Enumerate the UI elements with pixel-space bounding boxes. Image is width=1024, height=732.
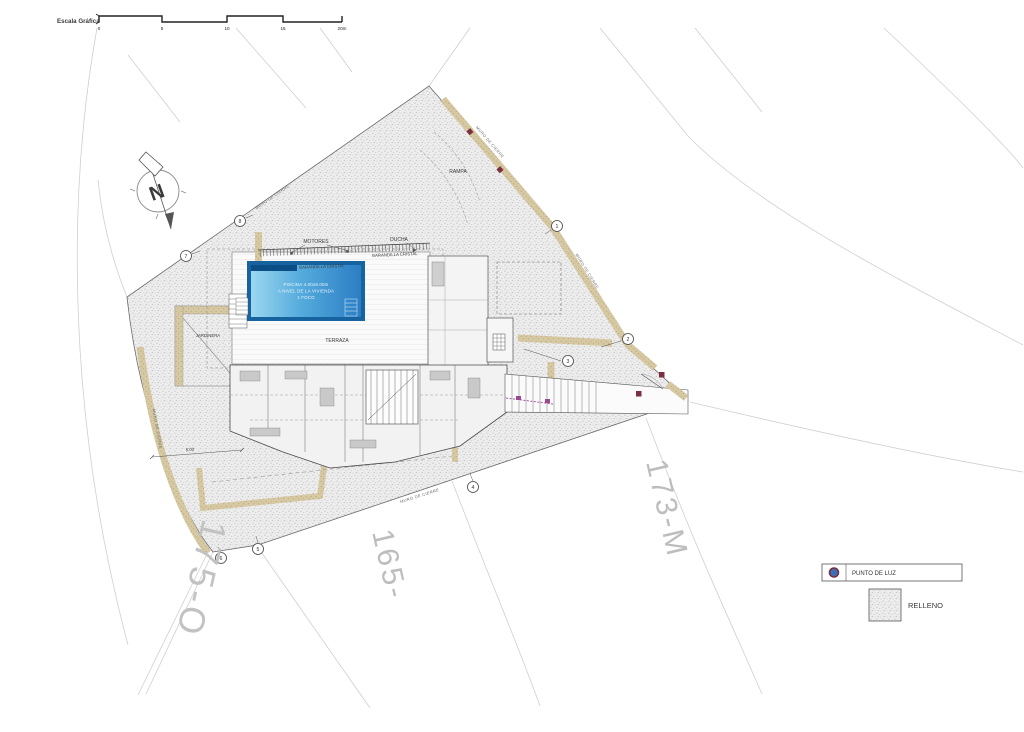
scale-tick-10: 10 — [224, 26, 230, 31]
svg-text:3: 3 — [567, 359, 570, 365]
legend-relleno-label: RELLENO — [908, 601, 943, 610]
scale-bar-title: Escala Gráfica — [57, 18, 100, 25]
scale-tick-5: 5 — [161, 26, 164, 31]
motores-label: MOTORES — [303, 239, 329, 245]
rampa-label: RAMPA — [449, 169, 467, 175]
north-letter: N — [146, 180, 167, 206]
piscina-label-1: PISCINA 4.00x8.00m — [283, 282, 328, 287]
pool-steps-west — [236, 298, 248, 315]
scale-tick-15: 15 — [280, 26, 286, 31]
piscina-label-3: 1 FOCO — [297, 295, 315, 300]
terraza-label: TERRAZA — [325, 338, 349, 344]
scale-tick-20: 20m — [338, 26, 347, 31]
relleno-swatch — [869, 589, 901, 621]
svg-text:7: 7 — [185, 254, 188, 260]
scale-bar: Escala Gráfica 0 5 10 15 20m — [57, 14, 347, 31]
legend: PUNTO DE LUZ RELLENO — [822, 564, 962, 621]
site-plan-sheet: 1 2 3 4 5 6 7 8 5.00 RAMPA MOTORES DUCHA… — [0, 0, 1024, 732]
svg-text:1: 1 — [556, 224, 559, 230]
light-point-icon — [830, 568, 839, 577]
jardinera-label: JARDINERA — [196, 333, 220, 338]
piscina-label-2: A NIVEL DE LA VIVIENDA — [278, 289, 334, 294]
legend-punto-label: PUNTO DE LUZ — [852, 571, 896, 577]
svg-text:2: 2 — [627, 337, 630, 343]
parcel-173m: 173-M — [639, 456, 694, 561]
parcel-175o: 175-O — [168, 516, 235, 642]
marker-4: 4 — [468, 474, 479, 493]
ducha-label: DUCHA — [390, 237, 408, 243]
legend-relleno: RELLENO — [869, 589, 943, 621]
site-plan-drawing: 1 2 3 4 5 6 7 8 5.00 RAMPA MOTORES DUCHA… — [0, 0, 1024, 732]
legend-punto-de-luz: PUNTO DE LUZ — [822, 564, 962, 581]
svg-text:5: 5 — [257, 547, 260, 553]
svg-text:4: 4 — [472, 485, 475, 491]
svg-text:5.00: 5.00 — [186, 447, 195, 453]
north-arrow-icon: N — [130, 152, 186, 229]
svg-text:8: 8 — [239, 219, 242, 225]
parcel-165: 165- — [365, 526, 413, 604]
stairs — [366, 370, 418, 424]
small-annex-structure — [487, 318, 513, 362]
garage-structure — [428, 256, 488, 368]
scale-tick-0: 0 — [98, 26, 101, 31]
